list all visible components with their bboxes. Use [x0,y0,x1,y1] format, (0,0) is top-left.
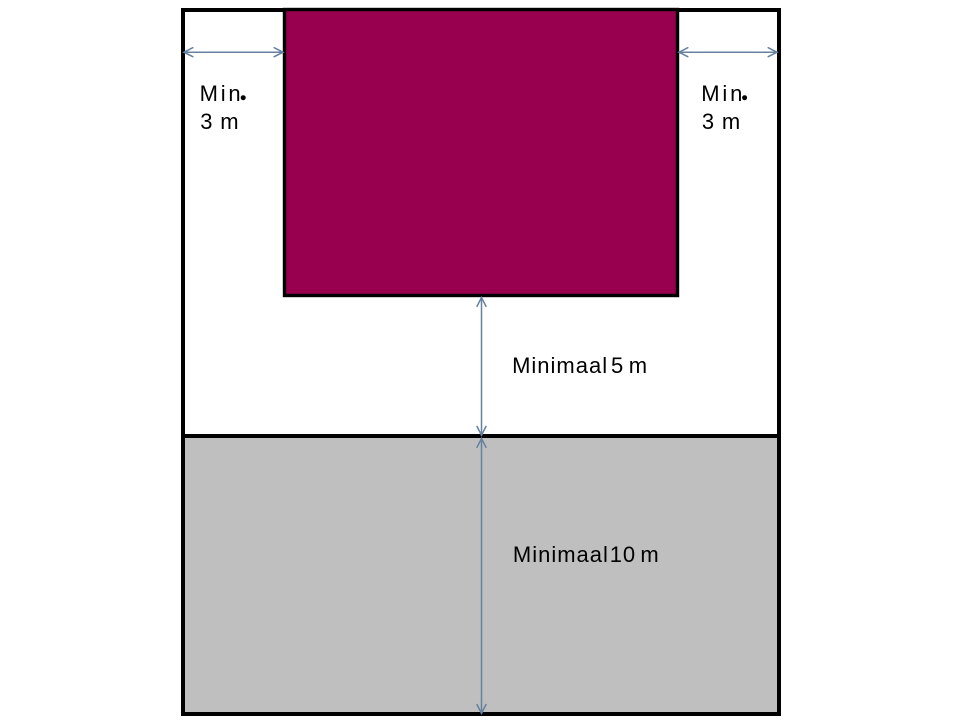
svg-text:Min: Min [701,81,745,106]
svg-text:3 m: 3 m [200,109,239,134]
svg-text:3 m: 3 m [702,109,741,134]
svg-text:Min: Min [200,81,244,106]
